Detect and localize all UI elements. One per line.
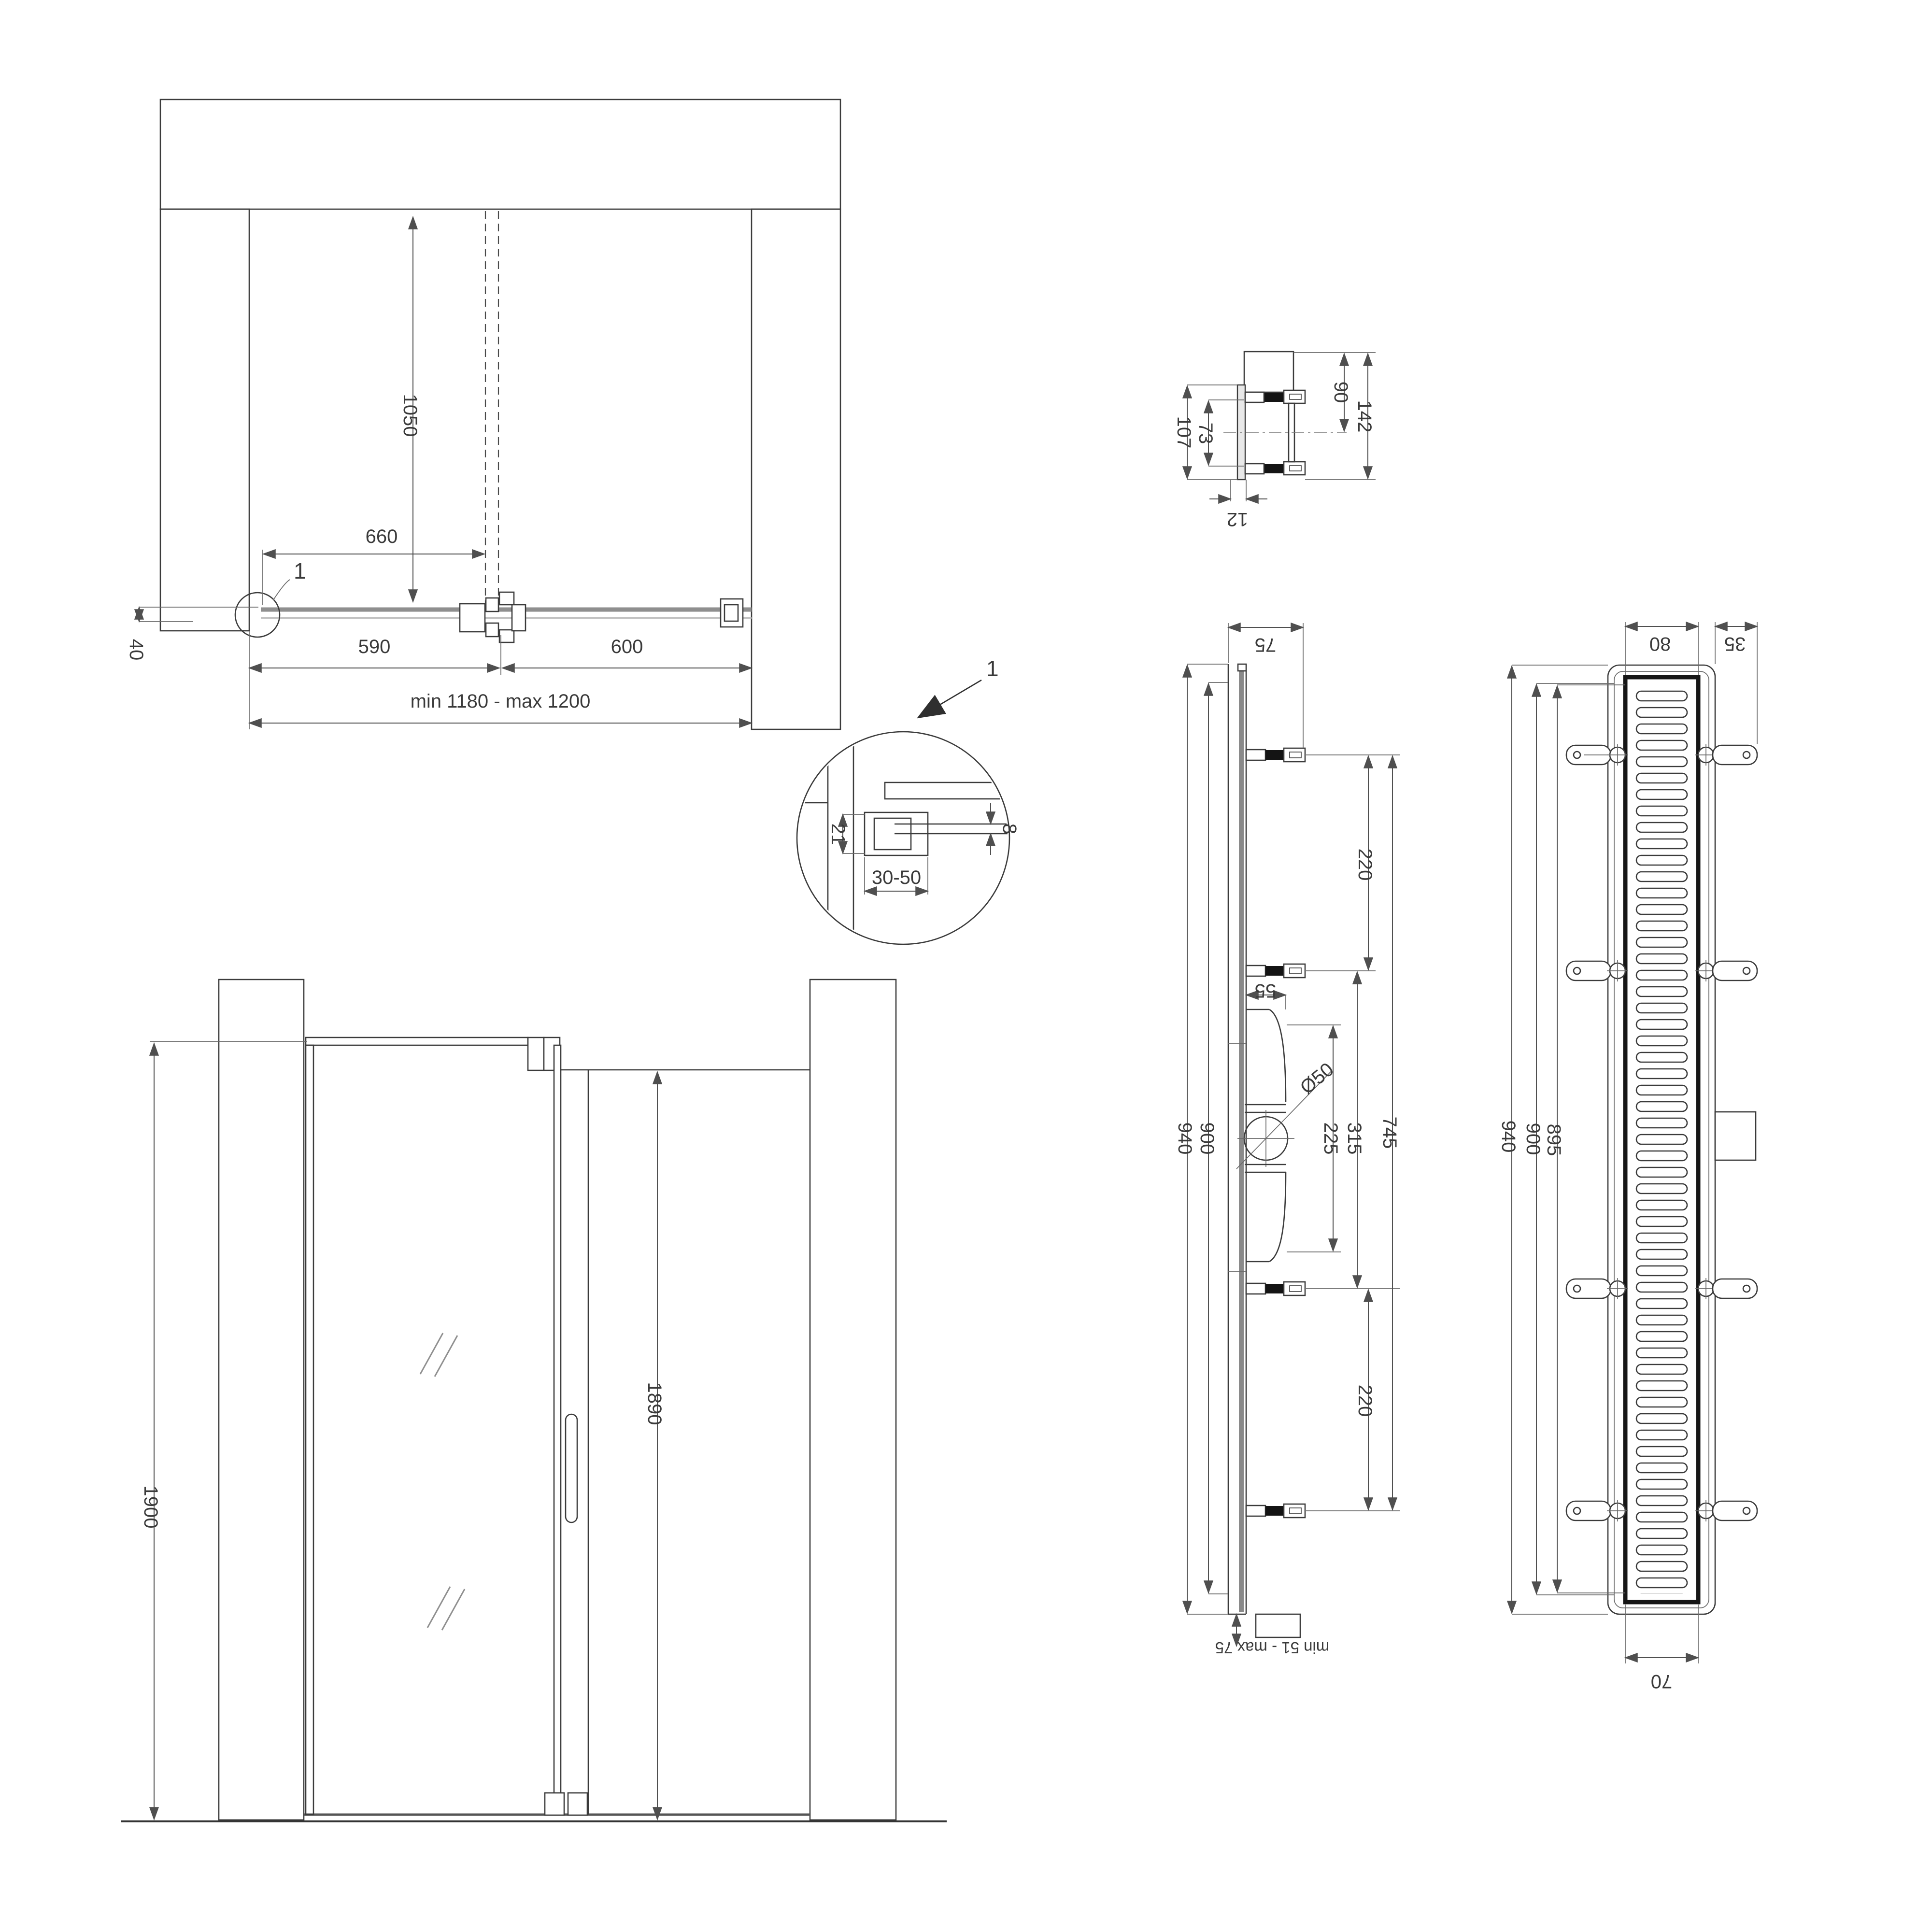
plan-left-wall — [160, 209, 249, 631]
side-outlet — [1715, 1112, 1756, 1160]
detail-leader — [273, 580, 290, 600]
dim-label-1050: 1050 — [399, 394, 421, 437]
dim-label-adjust: min 51 - max 75 — [1215, 1639, 1330, 1657]
dim-label-940: 940 — [1174, 1122, 1195, 1155]
dim-label-900: 900 — [1196, 1122, 1218, 1155]
dim-label-900: 900 — [1522, 1123, 1544, 1155]
dim-label-895: 895 — [1543, 1124, 1564, 1156]
dim-label-142: 142 — [1354, 400, 1375, 433]
pivot-clamp — [528, 1037, 544, 1070]
dim-label-total: min 1180 - max 1200 — [411, 691, 591, 712]
dim-label-55: 55 — [1255, 980, 1277, 1001]
front-right-wall — [810, 980, 896, 1820]
dim-label-315: 315 — [1344, 1122, 1365, 1155]
dim-label-40: 40 — [126, 639, 147, 661]
dim-label-107: 107 — [1173, 416, 1194, 449]
channel-foot — [1256, 1614, 1300, 1637]
channel-bracket — [1246, 748, 1305, 762]
detail-marker-circle — [235, 593, 280, 637]
detail-callout-number: 1 — [986, 656, 999, 681]
technical-drawing: 1 1050 660 590 600 min 1180 - max 1200 4… — [0, 0, 1932, 1932]
dim-label-21: 21 — [827, 824, 849, 845]
wall-profile — [306, 1045, 313, 1815]
plan-view: 1 1050 660 590 600 min 1180 - max 1200 4… — [126, 99, 840, 729]
dim-label-220-top: 220 — [1354, 849, 1376, 881]
dim-label-590: 590 — [358, 636, 391, 657]
dim-label-80: 80 — [1649, 633, 1671, 654]
dim-label-75: 75 — [1255, 634, 1277, 655]
bottom-pivot-block — [545, 1793, 564, 1815]
plan-top-wall — [160, 99, 840, 209]
channel-body — [1239, 667, 1244, 1612]
channel-bracket — [1246, 1282, 1305, 1295]
wall-bracket-section-view: 107 73 90 142 12 — [1173, 352, 1376, 530]
detail-callout-leader — [919, 680, 981, 717]
channel-end-section — [1244, 352, 1293, 392]
dim-label-225: 225 — [1320, 1122, 1341, 1155]
bottom-pivot-block — [568, 1793, 587, 1815]
door-stile — [554, 1045, 561, 1815]
bracket-arm — [1245, 462, 1305, 475]
dim-label-1890: 1890 — [644, 1382, 665, 1425]
detail-circle-view: 21 30-50 8 1 — [797, 656, 1020, 952]
dim-label-1900: 1900 — [140, 1486, 161, 1529]
glass-marks — [420, 1333, 465, 1630]
dim-label-8: 8 — [999, 824, 1020, 834]
dim-label-90: 90 — [1330, 382, 1351, 403]
detail-upper-rail — [885, 782, 1007, 799]
front-left-wall — [219, 980, 304, 1820]
plan-detail-ref: 1 — [294, 558, 306, 583]
dim-label-220-bottom: 220 — [1354, 1385, 1376, 1417]
wall-bracket — [721, 599, 743, 627]
channel-bracket — [1246, 1504, 1305, 1518]
plan-right-wall — [752, 209, 840, 729]
drain-side-view: Ø50 75 940 900 220 55 225 315 745 — [1174, 623, 1400, 1657]
grate-slots — [1634, 688, 1690, 1594]
dim-label-660: 660 — [366, 526, 398, 547]
dim-label-73: 73 — [1195, 423, 1216, 444]
dim-label-70: 70 — [1651, 1671, 1673, 1692]
channel-bracket — [1246, 964, 1305, 978]
dim-label-35: 35 — [1724, 633, 1746, 654]
top-support-bar — [306, 1037, 528, 1045]
dim-label-diameter: Ø50 — [1296, 1059, 1338, 1098]
dim-label-600: 600 — [611, 636, 643, 657]
channel-cap — [1238, 664, 1246, 671]
dim-label-30-50: 30-50 — [872, 867, 921, 888]
drain-trap — [1236, 1009, 1331, 1262]
dim-label-745: 745 — [1379, 1117, 1400, 1149]
front-view: 1900 1890 — [121, 980, 947, 1821]
dim-label-12: 12 — [1227, 509, 1249, 530]
dim-label-940: 940 — [1498, 1121, 1519, 1153]
door-handle — [566, 1414, 577, 1522]
drain-top-view: 80 35 940 900 895 70 — [1498, 622, 1757, 1692]
